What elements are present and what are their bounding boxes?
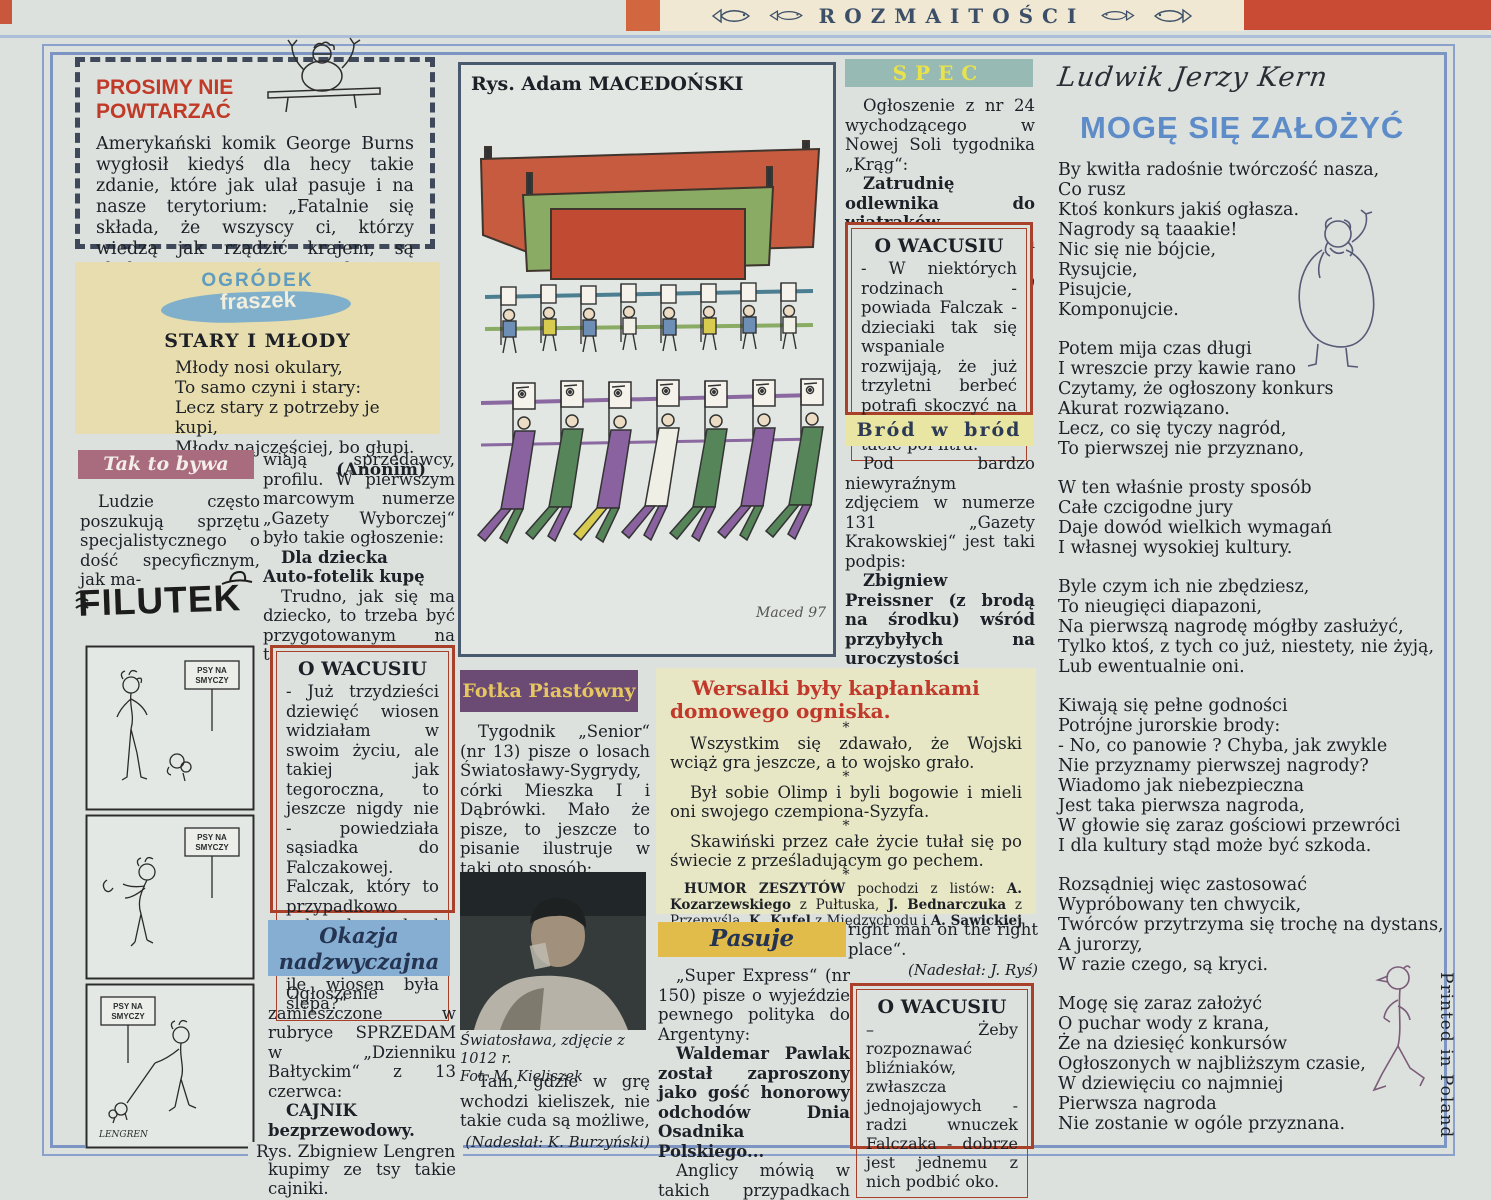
filutek-comic-panel: PSY NA SMYCZY	[85, 645, 255, 811]
page-title: ROZMAITOŚCI	[819, 4, 1086, 28]
paragraph: Anglicy mówią w takich przypadkach „The	[658, 1161, 850, 1200]
page-header-band: ROZMAITOŚCI	[660, 0, 1244, 31]
separator-asterisk: *	[670, 723, 1022, 734]
svg-text:PSY NA: PSY NA	[197, 833, 227, 842]
newspaper-page: ROZMAITOŚCI PROSIMY NIE POWTARZAĆ Ameryk…	[0, 0, 1491, 1200]
paragraph: Ogłoszenie zamieszczone w rubryce SPRZED…	[268, 984, 456, 1101]
drawing-signature: Maced 97.	[755, 605, 827, 621]
bold-ad-text: Dla dziecka Auto-fotelik kupę	[263, 548, 455, 587]
fotka-tail: Tam, gdzie w grę wchodzi kieliszek, nie …	[460, 1072, 650, 1152]
okazja-text: Ogłoszenie zamieszczone w rubryce SPRZED…	[268, 984, 456, 1200]
poem-stanza: Byle czym ich nie zbędziesz, To nieugięc…	[1058, 577, 1450, 677]
hat-icon	[220, 568, 254, 586]
svg-text:SMYCZY: SMYCZY	[111, 1012, 145, 1021]
section-header-spec: SPEC	[845, 59, 1033, 87]
corner-red-mark	[0, 0, 12, 24]
wersalki-title: Wersalki były kapłankami domowego ognisk…	[670, 677, 1022, 723]
section-header-okazja: Okazja nadzwyczajna	[268, 920, 450, 976]
credit-segment: z Pułtuska,	[791, 897, 888, 913]
paragraph: „Super Express“ (nr 150) pisze o wyjeźdz…	[658, 966, 850, 1044]
fish-icon	[1097, 8, 1137, 23]
ogrodek-fraszek-logo: OGRÓDEK fraszek	[153, 270, 363, 326]
macedonski-title: Rys. Adam MACEDOŃSKI	[471, 73, 823, 95]
walking-man-cartoon	[1362, 962, 1438, 1107]
filutek-logo: FILUTEK	[78, 562, 258, 634]
credit-segment: HUMOR ZESZYTÓW	[684, 881, 845, 897]
poem-stanza: W ten właśnie prosty sposób Całe czcigod…	[1058, 478, 1450, 558]
filutek-comic: PSY NA SMYCZY PSY NA SMYCZY	[85, 645, 255, 1152]
credit: (Nadesłał: J. Ryś)	[848, 961, 1038, 981]
fish-icon	[767, 8, 807, 23]
bold-caption-text: Zbigniew Preissner (z brodą na środku) w…	[845, 571, 1035, 669]
top-rule-line	[0, 35, 1491, 38]
credit-segment: pochodzi z listów:	[845, 881, 1007, 897]
separator-asterisk: *	[670, 870, 1022, 881]
paragraph: Tygodnik „Senior“ (nr 13) pisze o losach…	[460, 722, 650, 878]
section-header-fotka: Fotka Piastówny	[460, 670, 638, 712]
paragraph: wiają sprzedawcy, profilu. W pierwszym m…	[263, 450, 455, 548]
box-body: – Żeby rozpoznawać bliźniaków, zwłaszcza…	[866, 1020, 1018, 1191]
fotka-text: Tygodnik „Senior“ (nr 13) pisze o losach…	[460, 722, 650, 878]
svg-text:PSY NA: PSY NA	[197, 666, 227, 675]
top-right-red-bar	[1244, 0, 1491, 30]
bench-cartoon	[258, 36, 390, 118]
poem-author: Ludwik Jerzy Kern	[1056, 62, 1330, 93]
bottom-artist-credit: Rys. Zbigniew Lengren	[248, 1142, 463, 1162]
fraszka-box: OGRÓDEK fraszek STARY I MŁODY Młody nosi…	[75, 262, 440, 434]
filutek-comic-panel: PSY NA SMYCZY LENGREN	[85, 983, 255, 1149]
credit-segment: J. Bednarczuka	[888, 897, 1006, 913]
photo	[460, 872, 646, 1030]
o-wacusiu-box-2: O WACUSIU - W niektórych rodzinach - pow…	[845, 222, 1033, 415]
fraszka-title: STARY I MŁODY	[89, 330, 426, 352]
pasuje-text: „Super Express“ (nr 150) pisze o wyjeźdz…	[658, 966, 850, 1200]
separator-asterisk: *	[670, 772, 1022, 783]
bold-text: Waldemar Pawlak został zaproszony jako g…	[658, 1044, 850, 1161]
poem-stanza: Rozsądniej więc zastosować Wypróbowany t…	[1058, 875, 1450, 975]
section-header-pasuje: Pasuje	[658, 922, 846, 957]
separator-asterisk: *	[670, 821, 1022, 832]
wersalki-box: Wersalki były kapłankami domowego ognisk…	[656, 668, 1036, 914]
svg-text:SMYCZY: SMYCZY	[195, 843, 229, 852]
o-wacusiu-box-1: O WACUSIU - Już trzydzieści dziewięć wio…	[270, 645, 455, 913]
section-header-tak-to-bywa: Tak to bywa	[78, 450, 254, 479]
humor-line: Był sobie Olimp i byli bogowie i mieli o…	[670, 783, 1022, 821]
filutek-logo-text: FILUTEK	[77, 577, 242, 625]
printed-in-poland-label: Printed in Poland	[1436, 972, 1456, 1138]
humor-line: Wszystkim się zdawało, że Wojski wciąż g…	[670, 734, 1022, 772]
poem-stanza: By kwitła radośnie twórczość nasza, Co r…	[1058, 160, 1450, 320]
svg-text:PSY NA: PSY NA	[113, 1002, 143, 1011]
box-title: O WACUSIU	[866, 996, 1018, 1018]
poem-stanza: Potem mija czas długi I wreszcie przy ka…	[1058, 339, 1450, 459]
paragraph: right man on the right place“.	[848, 920, 1038, 959]
section-header-brod: Bród w bród	[845, 415, 1033, 446]
wave-icon	[74, 588, 100, 614]
o-wacusiu-box-3: O WACUSIU – Żeby rozpoznawać bliźniaków,…	[850, 983, 1034, 1149]
macedonski-drawing: Maced 97.	[471, 97, 827, 645]
paragraph: Ogłoszenie z nr 24 wychodzącego w Nowej …	[845, 96, 1035, 174]
paragraph: Tam, gdzie w grę wchodzi kieliszek, nie …	[460, 1072, 650, 1131]
box-title: O WACUSIU	[286, 658, 439, 680]
bold-ad-text: CAJNIK bezprzewodowy.	[268, 1101, 456, 1140]
macedonski-box: Rys. Adam MACEDOŃSKI	[458, 62, 836, 657]
paragraph: Pod bardzo niewyraźnym zdjęciem w numerz…	[845, 454, 1035, 571]
fish-icon	[709, 8, 755, 24]
credit: (Nadesłał: K. Burzyński)	[460, 1133, 650, 1153]
poem-title: MOGĘ SIĘ ZAŁOŻYĆ	[1080, 110, 1404, 146]
rightman-text: right man on the right place“. (Nadesłał…	[848, 920, 1038, 981]
filutek-comic-panel: PSY NA SMYCZY	[85, 814, 255, 980]
fraszka-poem: Młody nosi okulary, To samo czyni i star…	[175, 358, 426, 458]
comic-signature: LENGREN	[98, 1130, 149, 1140]
stout-man-cartoon	[1278, 208, 1388, 373]
svg-text:SMYCZY: SMYCZY	[195, 676, 229, 685]
poem-stanza: Kiwają się pełne godności Potrójne juror…	[1058, 696, 1450, 856]
top-orange-bar	[626, 0, 660, 31]
fish-icon	[1149, 8, 1195, 24]
box-title: O WACUSIU	[861, 235, 1017, 257]
humor-line: Skawiński przez całe życie tułał się po …	[670, 832, 1022, 870]
